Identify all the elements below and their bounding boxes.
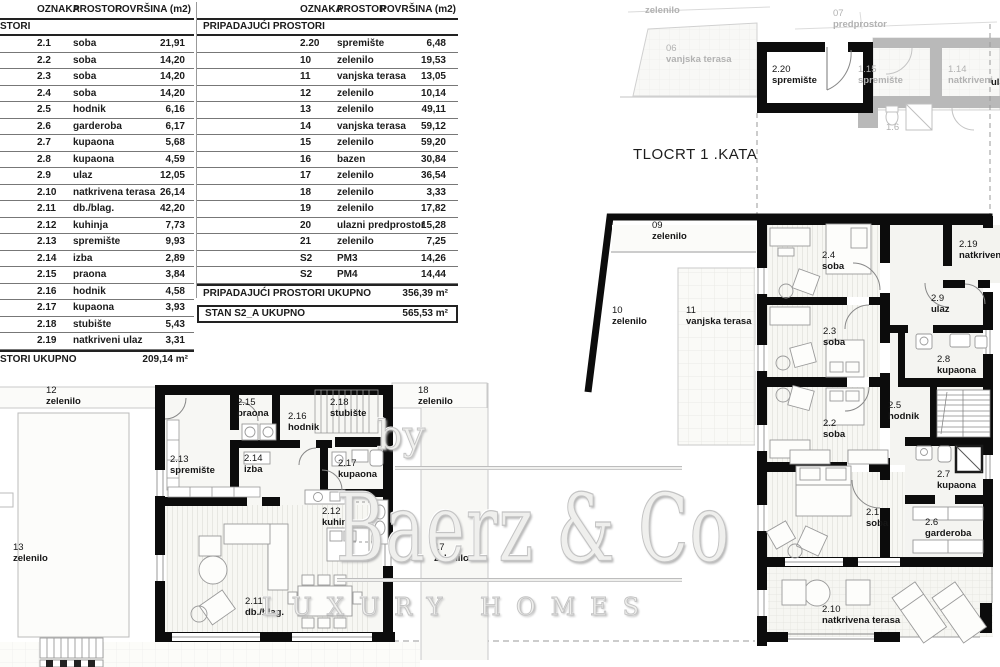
table-cell: bazen: [337, 152, 365, 168]
table-cell: 10,14: [421, 86, 446, 102]
table-prostori: OZNAKA PROSTOR POVRŠINA (m2) STORI 2.1so…: [0, 0, 194, 368]
table-cell: 2.10: [37, 185, 56, 201]
table-cell: 2.6: [37, 119, 51, 135]
table-cell: 49,11: [422, 102, 446, 118]
table-cell: zelenilo: [337, 168, 374, 184]
table-row: 2.3soba14,20: [0, 69, 194, 86]
sheet-title: TLOCRT 1 .KATA: [633, 146, 757, 163]
table-cell: PM4: [337, 267, 358, 283]
table-cell: zelenilo: [337, 53, 374, 69]
table-cell: spremište: [337, 36, 384, 52]
table-cell: 2.16: [37, 284, 56, 300]
table-rows: 2.1soba21,912.2soba14,202.3soba14,202.4s…: [0, 36, 194, 350]
table-cell: 13,05: [421, 69, 446, 85]
stairs-right-plan: [937, 390, 990, 437]
table-cell: 2.19: [37, 333, 56, 349]
table-cell: 21: [300, 234, 311, 250]
column-header: PROSTOR: [337, 2, 386, 18]
table-row: 2.1soba21,91: [0, 36, 194, 53]
table-cell: kupaona: [73, 300, 114, 316]
table-cell: zelenilo: [337, 185, 374, 201]
table-cell: soba: [73, 36, 96, 52]
table-cell: 21,91: [160, 36, 185, 52]
stairs-exterior: [40, 638, 103, 667]
table-row: 10zelenilo19,53: [197, 53, 458, 70]
table-row: 2.7kupaona5,68: [0, 135, 194, 152]
table-row: 2.4soba14,20: [0, 86, 194, 103]
table-row: 17zelenilo36,54: [197, 168, 458, 185]
table-cell: 20: [300, 218, 311, 234]
table-cell: 5,68: [166, 135, 185, 151]
table-cell: 10: [300, 53, 311, 69]
table-cell: 2.8: [37, 152, 51, 168]
table-section-title: STORI: [0, 18, 194, 36]
table-row: 2.16hodnik4,58: [0, 284, 194, 301]
table-cell: 5,43: [166, 317, 185, 333]
table-cell: db./blag.: [73, 201, 114, 217]
table-cell: 12: [300, 86, 311, 102]
table-row: 2.9ulaz12,05: [0, 168, 194, 185]
table-row: 14vanjska terasa59,12: [197, 119, 458, 136]
total-label: STORI UKUPNO: [0, 352, 77, 368]
table-cell: 7,25: [427, 234, 446, 250]
table-row: 2.18stubište5,43: [0, 317, 194, 334]
table-cell: 17,82: [421, 201, 446, 217]
table-cell: 17: [300, 168, 311, 184]
table-row: S2PM314,26: [197, 251, 458, 268]
table-row: 2.5hodnik6,16: [0, 102, 194, 119]
table-cell: S2: [300, 251, 312, 267]
table-cell: spremište: [73, 234, 120, 250]
table-row: 13zelenilo49,11: [197, 102, 458, 119]
table-cell: zelenilo: [337, 102, 374, 118]
table-cell: 26,14: [160, 185, 185, 201]
table-cell: ulaz: [73, 168, 92, 184]
table-cell: vanjska terasa: [337, 119, 406, 135]
table-cell: 12,05: [160, 168, 185, 184]
table-row: 20ulazni predprostor15,28: [197, 218, 458, 235]
table-cell: 6,48: [427, 36, 446, 52]
table-pripadajuci-prostori: OZNAKA PROSTOR POVRŠINA (m2) PRIPADAJUĆI…: [197, 0, 458, 323]
table-cell: 2.3: [37, 69, 51, 85]
stan-total-label: STAN S2_A UKUPNO: [205, 307, 305, 321]
table-cell: 14,20: [160, 53, 185, 69]
table-total-row: PRIPADAJUĆI PROSTORI UKUPNO 356,39 m²: [197, 284, 458, 302]
table-row: 11vanjska terasa13,05: [197, 69, 458, 86]
table-cell: 59,12: [421, 119, 446, 135]
table-cell: 2.20: [300, 36, 319, 52]
table-cell: kupaona: [73, 135, 114, 151]
table-cell: 2.14: [37, 251, 56, 267]
table-cell: 16: [300, 152, 311, 168]
table-header: OZNAKA PROSTOR POVRŠINA (m2): [197, 0, 458, 18]
total-value: 209,14 m²: [142, 352, 188, 368]
table-cell: kupaona: [73, 152, 114, 168]
table-row: 2.19natkriveni ulaz3,31: [0, 333, 194, 350]
table-cell: 18: [300, 185, 311, 201]
stan-total-value: 565,53 m²: [402, 307, 448, 321]
table-row: 2.13spremište9,93: [0, 234, 194, 251]
table-row: 2.2soba14,20: [0, 53, 194, 70]
total-label: PRIPADAJUĆI PROSTORI UKUPNO: [203, 286, 371, 302]
table-cell: 2.12: [37, 218, 56, 234]
table-cell: 3,93: [166, 300, 185, 316]
table-cell: PM3: [337, 251, 358, 267]
watermark-logo: Baerz & Co: [336, 474, 730, 583]
table-cell: S2: [300, 267, 312, 283]
table-row: 2.11db./blag.42,20: [0, 201, 194, 218]
table-cell: praona: [73, 267, 106, 283]
table-cell: soba: [73, 53, 96, 69]
table-cell: 2.4: [37, 86, 51, 102]
stan-total-box: STAN S2_A UKUPNO 565,53 m²: [197, 305, 458, 323]
room-2-20-spremiste: [757, 42, 873, 113]
table-cell: natkrivena terasa: [73, 185, 155, 201]
table-cell: 15: [300, 135, 311, 151]
table-row: 2.10natkrivena terasa26,14: [0, 185, 194, 202]
table-cell: 6,16: [166, 102, 185, 118]
table-cell: hodnik: [73, 284, 106, 300]
table-row: 18zelenilo3,33: [197, 185, 458, 202]
table-cell: 2,89: [166, 251, 185, 267]
table-cell: 2.18: [37, 317, 56, 333]
gray-background-plan: [620, 7, 1000, 215]
table-cell: 3,33: [427, 185, 446, 201]
table-row: 12zelenilo10,14: [197, 86, 458, 103]
table-row: 2.6garderoba6,17: [0, 119, 194, 136]
watermark-tagline: LUXURY HOMES: [262, 593, 654, 621]
table-cell: 2.15: [37, 267, 56, 283]
table-row: 2.8kupaona4,59: [0, 152, 194, 169]
table-cell: 59,20: [421, 135, 446, 151]
table-total-row: STORI UKUPNO 209,14 m²: [0, 350, 194, 368]
table-cell: 2.13: [37, 234, 56, 250]
table-row: 2.14izba2,89: [0, 251, 194, 268]
table-cell: 19,53: [421, 53, 446, 69]
table-row: 2.17kupaona3,93: [0, 300, 194, 317]
table-row: 19zelenilo17,82: [197, 201, 458, 218]
table-header: OZNAKA PROSTOR POVRŠINA (m2): [0, 0, 194, 18]
column-header: POVRŠINA (m2): [380, 2, 456, 18]
column-header: POVRŠINA (m2): [115, 2, 191, 18]
table-cell: 30,84: [421, 152, 446, 168]
table-row: 2.15praona3,84: [0, 267, 194, 284]
table-cell: 15,28: [421, 218, 446, 234]
table-cell: 14: [300, 119, 311, 135]
table-cell: 42,20: [160, 201, 185, 217]
table-rows: 2.20spremište6,4810zelenilo19,5311vanjsk…: [197, 36, 458, 284]
table-cell: hodnik: [73, 102, 106, 118]
table-cell: 2.5: [37, 102, 51, 118]
table-cell: 13: [300, 102, 311, 118]
table-cell: 36,54: [421, 168, 446, 184]
table-cell: 14,20: [160, 69, 185, 85]
table-cell: 6,17: [166, 119, 185, 135]
watermark-by: by: [377, 413, 425, 459]
total-value: 356,39 m²: [402, 286, 448, 302]
table-cell: 14,20: [160, 86, 185, 102]
table-cell: zelenilo: [337, 135, 374, 151]
table-cell: 9,93: [166, 234, 185, 250]
table-cell: ulazni predprostor: [337, 218, 425, 234]
table-cell: zelenilo: [337, 234, 374, 250]
table-cell: natkriveni ulaz: [73, 333, 142, 349]
table-cell: garderoba: [73, 119, 122, 135]
table-cell: 2.7: [37, 135, 51, 151]
table-section-title: PRIPADAJUĆI PROSTORI: [197, 18, 458, 36]
table-row: 21zelenilo7,25: [197, 234, 458, 251]
table-cell: vanjska terasa: [337, 69, 406, 85]
table-cell: kuhinja: [73, 218, 108, 234]
table-cell: zelenilo: [337, 201, 374, 217]
table-row: 2.20spremište6,48: [197, 36, 458, 53]
table-row: 15zelenilo59,20: [197, 135, 458, 152]
table-row: S2PM414,44: [197, 267, 458, 284]
table-cell: zelenilo: [337, 86, 374, 102]
table-cell: 14,44: [421, 267, 446, 283]
table-cell: izba: [73, 251, 92, 267]
table-cell: soba: [73, 69, 96, 85]
table-cell: 2.9: [37, 168, 51, 184]
table-cell: 2.11: [37, 201, 56, 217]
table-cell: 3,84: [166, 267, 185, 283]
table-cell: 2.17: [37, 300, 56, 316]
table-cell: 3,31: [166, 333, 185, 349]
floorplan-sheet: OZNAKA PROSTOR POVRŠINA (m2) STORI 2.1so…: [0, 0, 1000, 667]
table-cell: soba: [73, 86, 96, 102]
table-cell: 4,59: [166, 152, 185, 168]
table-cell: 2.2: [37, 53, 51, 69]
table-row: 16bazen30,84: [197, 152, 458, 169]
table-cell: 7,73: [166, 218, 185, 234]
table-cell: 14,26: [421, 251, 446, 267]
table-cell: 19: [300, 201, 311, 217]
table-row: 2.12kuhinja7,73: [0, 218, 194, 235]
table-cell: 4,58: [166, 284, 185, 300]
table-cell: stubište: [73, 317, 111, 333]
table-cell: 2.1: [37, 36, 51, 52]
watermark-line: [395, 466, 682, 470]
table-cell: 11: [300, 69, 311, 85]
